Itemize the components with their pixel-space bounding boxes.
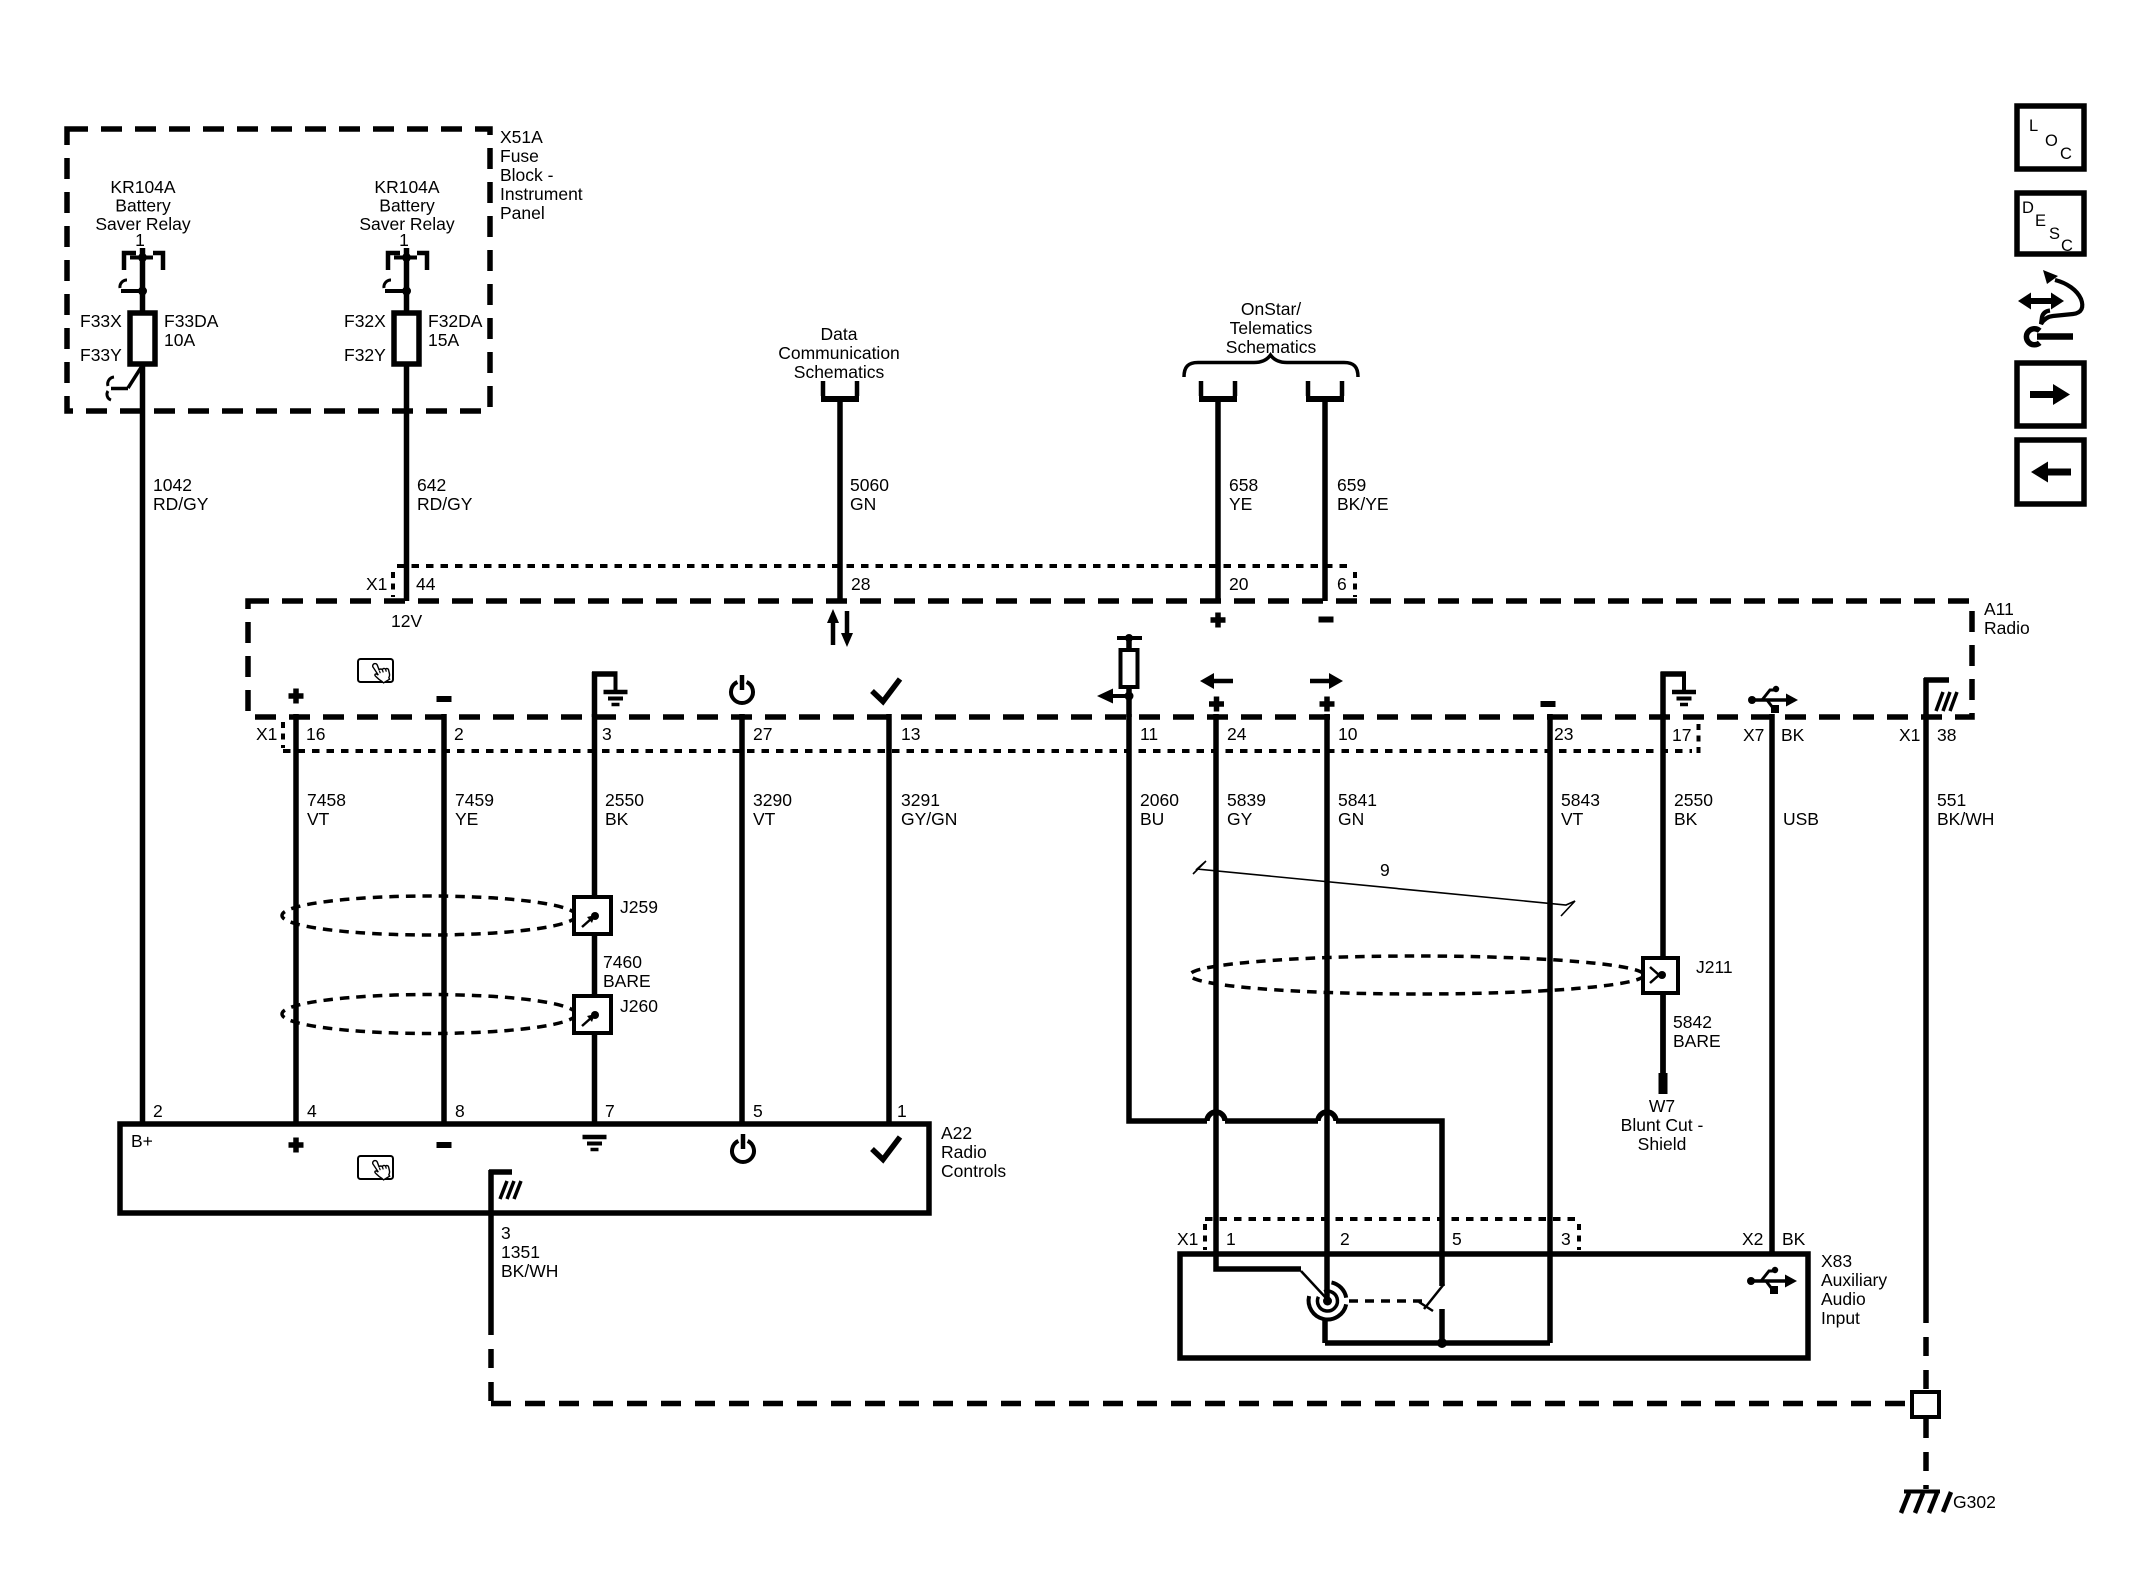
svg-text:5841: 5841 — [1338, 790, 1377, 810]
svg-text:1042: 1042 — [153, 475, 192, 495]
svg-text:BU: BU — [1140, 809, 1164, 829]
svg-text:3291: 3291 — [901, 790, 940, 810]
svg-text:KR104A: KR104A — [374, 177, 440, 197]
svg-text:X1: X1 — [256, 724, 277, 744]
svg-text:C: C — [2061, 237, 2073, 255]
svg-text:J260: J260 — [620, 996, 658, 1016]
svg-text:Radio: Radio — [941, 1142, 987, 1162]
svg-text:X1: X1 — [366, 574, 387, 594]
svg-text:Battery: Battery — [115, 196, 171, 216]
svg-text:44: 44 — [416, 574, 436, 594]
svg-text:38: 38 — [1937, 725, 1956, 745]
svg-text:X1: X1 — [1899, 725, 1920, 745]
svg-text:Telematics: Telematics — [1230, 318, 1313, 338]
svg-text:Instrument: Instrument — [500, 184, 583, 204]
svg-text:3: 3 — [501, 1223, 511, 1243]
svg-text:KR104A: KR104A — [110, 177, 176, 197]
svg-text:13: 13 — [901, 724, 920, 744]
svg-text:3: 3 — [1561, 1229, 1571, 1249]
svg-text:1: 1 — [399, 230, 409, 250]
svg-text:24: 24 — [1227, 724, 1247, 744]
svg-text:BK/WH: BK/WH — [501, 1261, 558, 1281]
svg-text:642: 642 — [417, 475, 446, 495]
svg-text:2060: 2060 — [1140, 790, 1179, 810]
svg-text:L: L — [2029, 117, 2038, 135]
svg-text:OnStar/: OnStar/ — [1241, 299, 1301, 319]
svg-text:15A: 15A — [428, 330, 459, 350]
svg-text:5: 5 — [1452, 1229, 1462, 1249]
svg-text:Audio: Audio — [1821, 1289, 1866, 1309]
svg-text:Block -: Block - — [500, 165, 554, 185]
svg-text:2550: 2550 — [1674, 790, 1713, 810]
svg-text:YE: YE — [455, 809, 478, 829]
svg-text:5843: 5843 — [1561, 790, 1600, 810]
svg-text:VT: VT — [307, 809, 330, 829]
svg-text:YE: YE — [1229, 494, 1252, 514]
svg-text:10: 10 — [1338, 724, 1358, 744]
svg-text:17: 17 — [1672, 725, 1691, 745]
svg-text:3290: 3290 — [753, 790, 792, 810]
svg-text:Battery: Battery — [379, 196, 435, 216]
svg-text:F33DA: F33DA — [164, 311, 219, 331]
svg-text:G302: G302 — [1953, 1492, 1996, 1512]
svg-text:BK/WH: BK/WH — [1937, 809, 1994, 829]
svg-text:5842: 5842 — [1673, 1012, 1712, 1032]
svg-text:D: D — [2022, 199, 2034, 217]
svg-text:10A: 10A — [164, 330, 195, 350]
svg-text:Blunt Cut -: Blunt Cut - — [1621, 1115, 1704, 1135]
svg-text:2550: 2550 — [605, 790, 644, 810]
svg-text:RD/GY: RD/GY — [417, 494, 473, 514]
svg-text:J259: J259 — [620, 897, 658, 917]
svg-text:28: 28 — [851, 574, 870, 594]
svg-text:GN: GN — [850, 494, 876, 514]
svg-text:7458: 7458 — [307, 790, 346, 810]
svg-text:658: 658 — [1229, 475, 1258, 495]
svg-text:5060: 5060 — [850, 475, 889, 495]
svg-text:6: 6 — [1337, 574, 1347, 594]
svg-text:Radio: Radio — [1984, 618, 2030, 638]
svg-text:BK: BK — [1674, 809, 1698, 829]
svg-text:GY: GY — [1227, 809, 1253, 829]
svg-text:551: 551 — [1937, 790, 1966, 810]
svg-text:F32Y: F32Y — [344, 345, 386, 365]
svg-text:X2: X2 — [1742, 1229, 1763, 1249]
svg-text:BARE: BARE — [603, 971, 651, 991]
svg-text:3: 3 — [602, 724, 612, 744]
svg-text:5839: 5839 — [1227, 790, 1266, 810]
svg-text:BK: BK — [1781, 725, 1805, 745]
svg-text:F33X: F33X — [80, 311, 122, 331]
svg-text:Input: Input — [1821, 1308, 1860, 1328]
svg-text:F33Y: F33Y — [80, 345, 122, 365]
svg-text:7460: 7460 — [603, 952, 642, 972]
svg-text:4: 4 — [307, 1101, 317, 1121]
svg-text:A11: A11 — [1984, 599, 2014, 619]
svg-text:F32DA: F32DA — [428, 311, 483, 331]
svg-text:16: 16 — [306, 724, 325, 744]
svg-text:2: 2 — [1340, 1229, 1350, 1249]
svg-text:Data: Data — [821, 324, 858, 344]
svg-text:1: 1 — [1226, 1229, 1236, 1249]
svg-text:12V: 12V — [391, 611, 422, 631]
svg-text:1: 1 — [135, 230, 145, 250]
svg-text:5: 5 — [753, 1101, 763, 1121]
svg-text:X7: X7 — [1743, 725, 1764, 745]
svg-text:BARE: BARE — [1673, 1031, 1721, 1051]
svg-text:BK/YE: BK/YE — [1337, 494, 1389, 514]
svg-text:GN: GN — [1338, 809, 1364, 829]
svg-text:RD/GY: RD/GY — [153, 494, 209, 514]
svg-text:2: 2 — [454, 724, 464, 744]
svg-text:A22: A22 — [941, 1123, 972, 1143]
svg-text:Communication: Communication — [778, 343, 900, 363]
svg-text:1: 1 — [897, 1101, 907, 1121]
svg-text:BK: BK — [605, 809, 629, 829]
svg-text:E: E — [2035, 212, 2046, 230]
svg-text:11: 11 — [1140, 724, 1158, 744]
svg-text:GY/GN: GY/GN — [901, 809, 957, 829]
svg-text:20: 20 — [1229, 574, 1249, 594]
svg-text:27: 27 — [753, 724, 772, 744]
svg-text:VT: VT — [1561, 809, 1584, 829]
svg-text:Controls: Controls — [941, 1161, 1006, 1181]
svg-text:7: 7 — [605, 1101, 615, 1121]
svg-text:VT: VT — [753, 809, 776, 829]
svg-text:USB: USB — [1783, 809, 1819, 829]
svg-text:S: S — [2049, 225, 2060, 243]
svg-text:Panel: Panel — [500, 203, 545, 223]
svg-text:659: 659 — [1337, 475, 1366, 495]
svg-text:8: 8 — [455, 1101, 465, 1121]
svg-text:O: O — [2045, 132, 2058, 150]
svg-text:X1: X1 — [1177, 1229, 1198, 1249]
svg-text:7459: 7459 — [455, 790, 494, 810]
svg-text:Auxiliary: Auxiliary — [1821, 1270, 1887, 1290]
svg-text:1351: 1351 — [501, 1242, 540, 1262]
svg-text:W7: W7 — [1649, 1096, 1675, 1116]
svg-text:9: 9 — [1380, 860, 1390, 880]
svg-text:23: 23 — [1554, 724, 1573, 744]
svg-text:X51A: X51A — [500, 127, 543, 147]
svg-text:Shield: Shield — [1638, 1134, 1687, 1154]
svg-text:Schematics: Schematics — [794, 362, 885, 382]
svg-text:BK: BK — [1782, 1229, 1806, 1249]
svg-text:J211: J211 — [1696, 957, 1733, 977]
svg-text:Fuse: Fuse — [500, 146, 539, 166]
svg-text:F32X: F32X — [344, 311, 386, 331]
svg-text:B+: B+ — [131, 1131, 153, 1151]
svg-text:X83: X83 — [1821, 1251, 1852, 1271]
svg-text:2: 2 — [153, 1101, 163, 1121]
svg-text:C: C — [2060, 145, 2072, 163]
